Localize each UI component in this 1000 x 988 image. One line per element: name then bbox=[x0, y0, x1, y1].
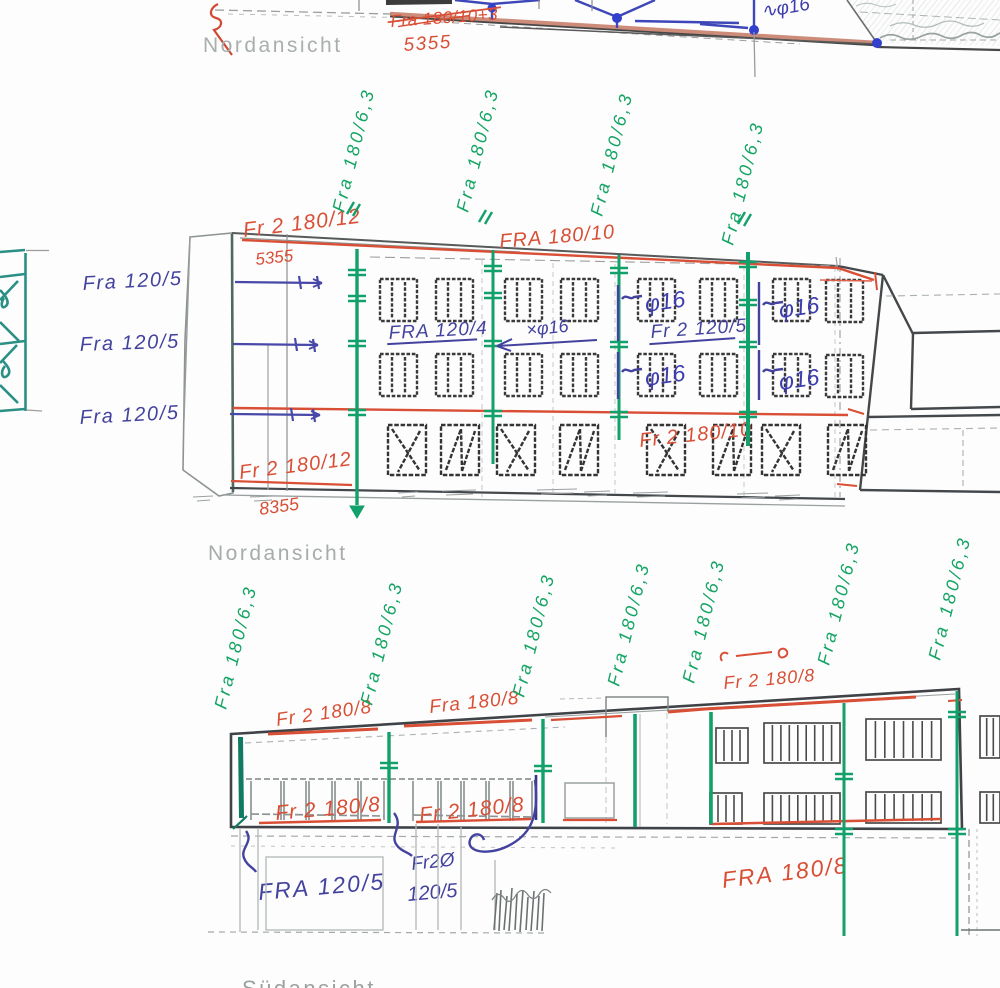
svg-text:5355: 5355 bbox=[403, 32, 453, 56]
svg-text:Fra 120/5: Fra 120/5 bbox=[79, 331, 180, 356]
svg-text:Nordansicht: Nordansicht bbox=[203, 34, 343, 57]
svg-text:Südansicht: Südansicht bbox=[242, 976, 376, 988]
svg-text:5355: 5355 bbox=[254, 246, 294, 269]
svg-text:120/5: 120/5 bbox=[407, 880, 460, 906]
svg-text:Nordansicht: Nordansicht bbox=[208, 542, 348, 565]
